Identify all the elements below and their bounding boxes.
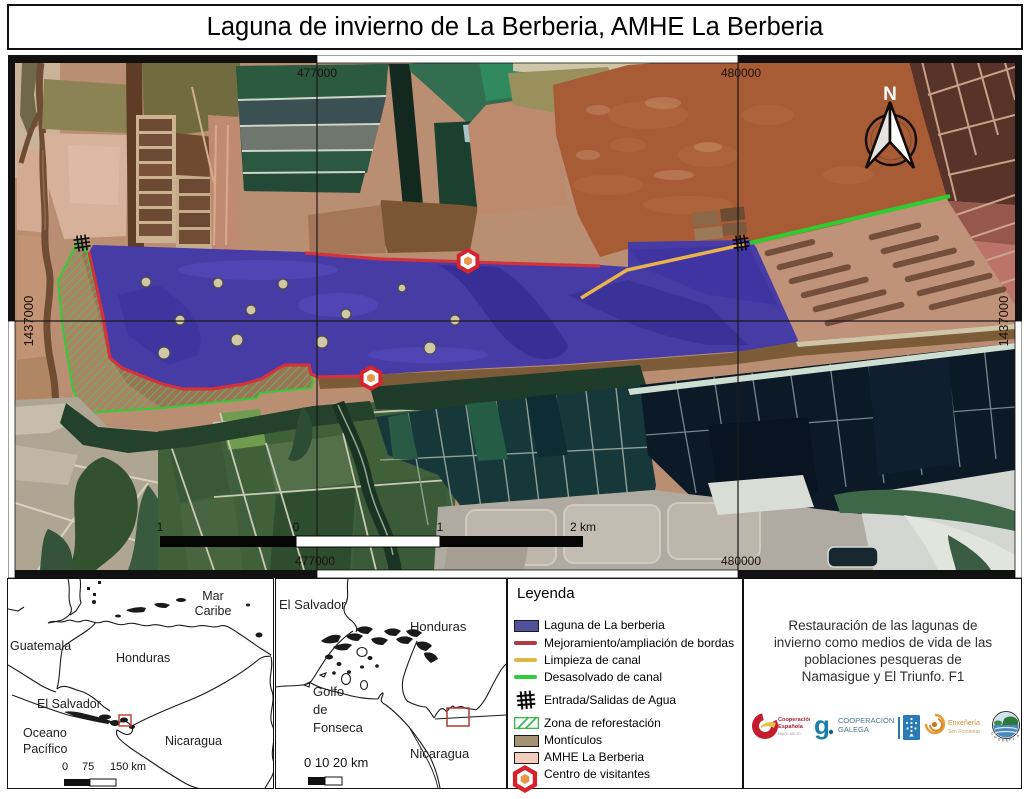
svg-text:480000: 480000 bbox=[721, 554, 761, 568]
svg-text:N: N bbox=[883, 84, 897, 105]
svg-text:1: 1 bbox=[437, 520, 444, 534]
svg-text:0 10 20 km: 0 10 20 km bbox=[304, 755, 368, 770]
svg-text:D: D bbox=[1002, 739, 1005, 743]
svg-text:GALEGA: GALEGA bbox=[838, 725, 869, 734]
svg-text:A: A bbox=[1016, 733, 1021, 738]
svg-text:Española: Española bbox=[778, 724, 804, 730]
svg-text:0: 0 bbox=[293, 520, 300, 534]
svg-text:Cooperación: Cooperación bbox=[778, 717, 810, 723]
svg-text:F: F bbox=[1009, 738, 1011, 742]
svg-text:480000: 480000 bbox=[721, 66, 761, 80]
svg-text:Enxeñería: Enxeñería bbox=[948, 720, 980, 727]
svg-text:150 km: 150 km bbox=[110, 761, 146, 773]
svg-text:E: E bbox=[1006, 739, 1008, 743]
svg-text:MAEC·AECID: MAEC·AECID bbox=[778, 732, 801, 736]
svg-text:1437000: 1437000 bbox=[996, 296, 1011, 347]
svg-text:477000: 477000 bbox=[297, 66, 337, 80]
svg-text:2 km: 2 km bbox=[570, 520, 596, 534]
svg-text:g: g bbox=[814, 710, 830, 740]
svg-text:D: D bbox=[998, 738, 1001, 742]
svg-text:1437000: 1437000 bbox=[21, 296, 36, 347]
svg-text:0: 0 bbox=[62, 761, 68, 773]
svg-text:477000: 477000 bbox=[295, 554, 335, 568]
svg-text:COOPERACIÓN: COOPERACIÓN bbox=[838, 716, 894, 725]
svg-text:F: F bbox=[1012, 737, 1016, 741]
svg-text:1: 1 bbox=[157, 520, 164, 534]
svg-text:75: 75 bbox=[82, 761, 94, 773]
svg-text:Sen Fronteiras: Sen Fronteiras bbox=[948, 729, 980, 735]
